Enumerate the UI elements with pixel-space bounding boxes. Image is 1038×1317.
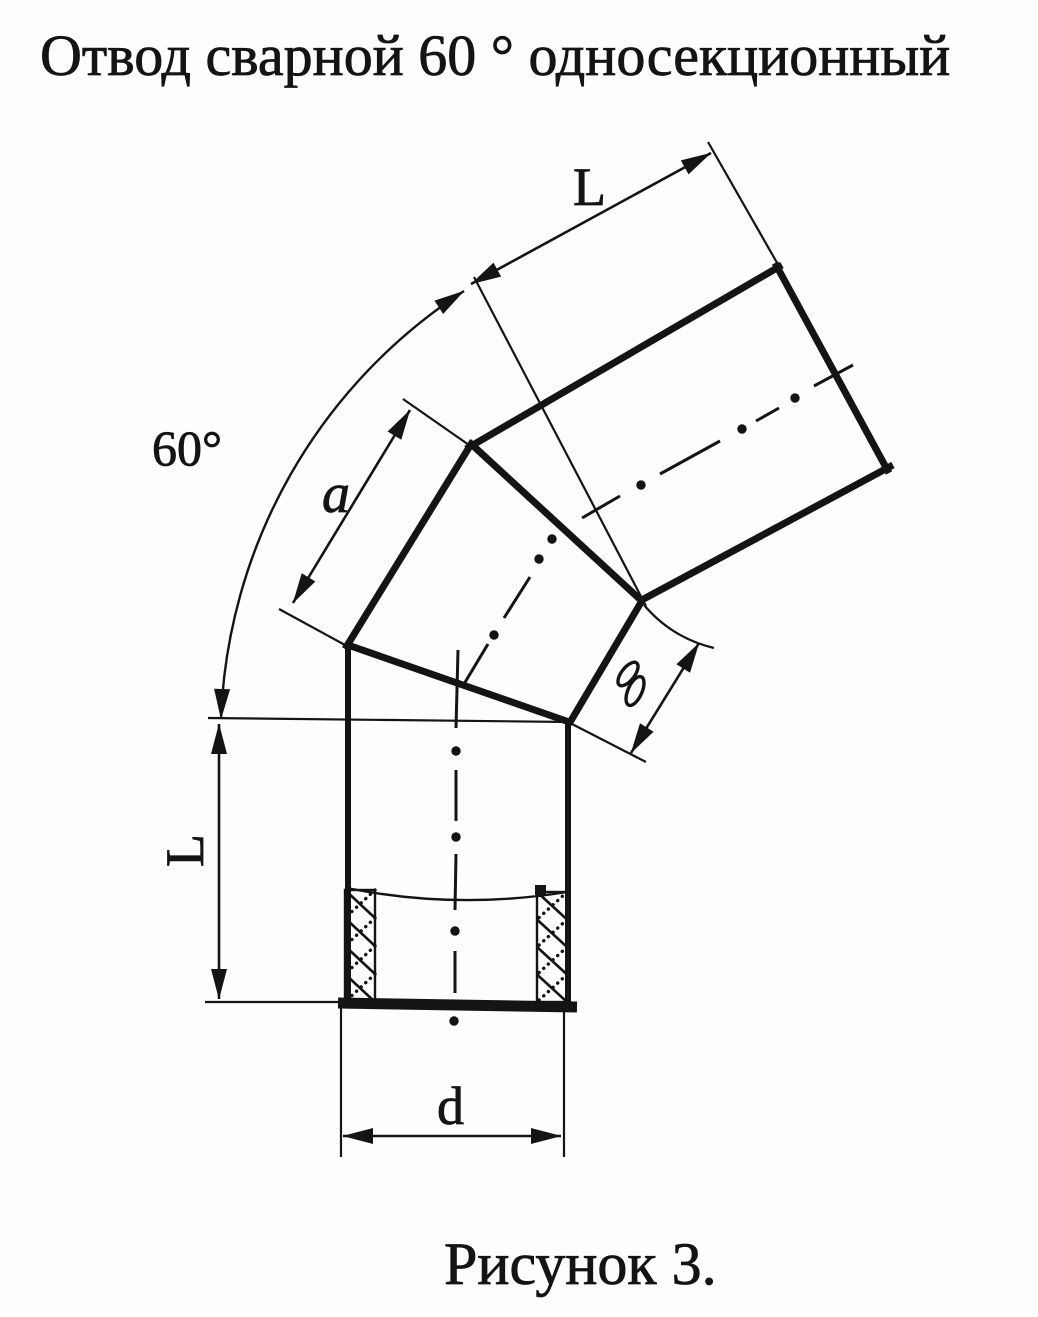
svg-text:a: a bbox=[322, 463, 350, 525]
svg-text:Рисунок 3.: Рисунок 3. bbox=[444, 1231, 717, 1297]
svg-text:d: d bbox=[437, 1076, 464, 1136]
svg-text:60°: 60° bbox=[152, 420, 222, 476]
svg-text:Отвод сварной 60 ° односекцион: Отвод сварной 60 ° односекционный bbox=[40, 23, 950, 88]
svg-text:L: L bbox=[573, 157, 606, 217]
svg-text:L: L bbox=[155, 834, 215, 867]
